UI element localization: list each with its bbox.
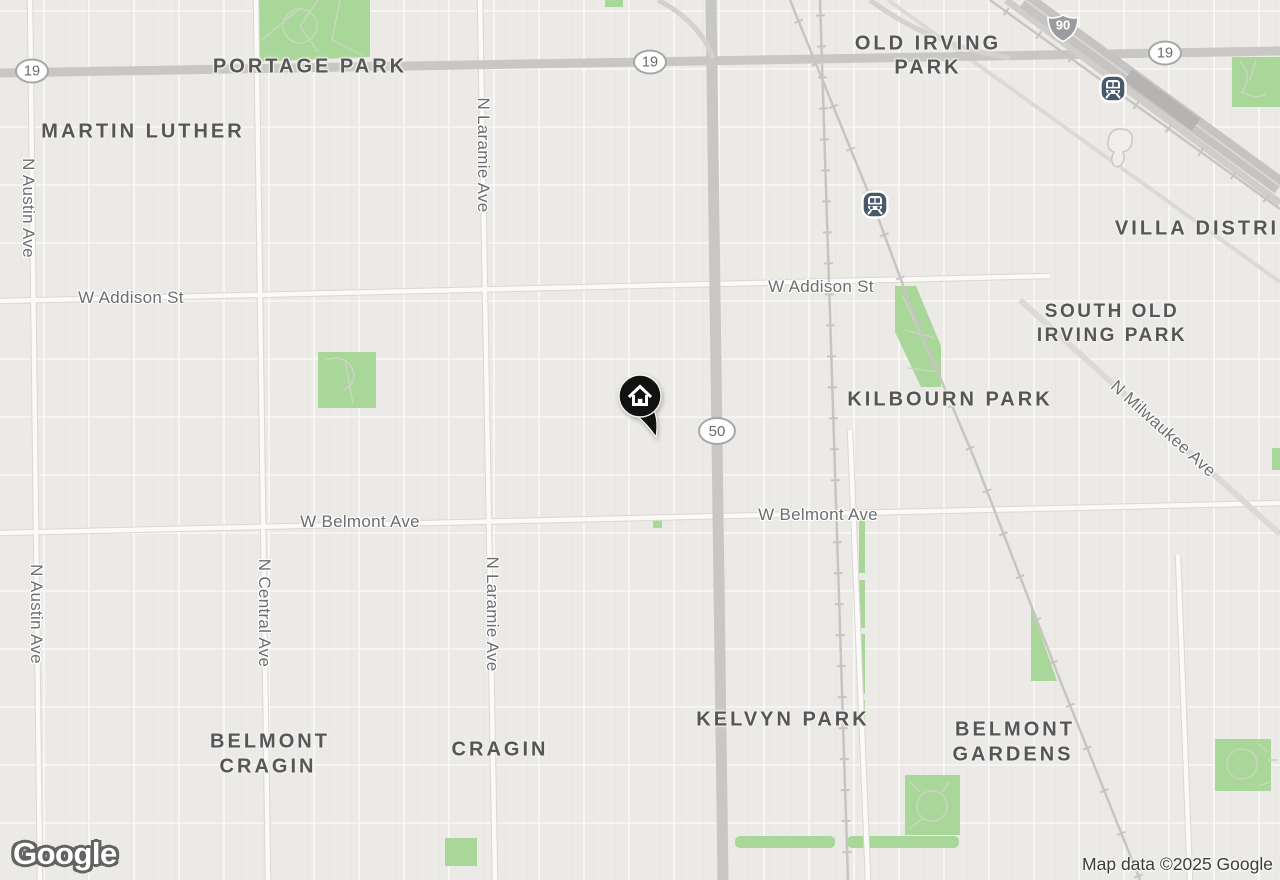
pond bbox=[1108, 129, 1132, 167]
interstate-shield-number: 90 bbox=[1046, 18, 1080, 33]
google-logo[interactable]: Google bbox=[13, 836, 117, 872]
home-marker-pin[interactable] bbox=[608, 362, 674, 444]
train-station-icon[interactable] bbox=[1099, 74, 1127, 104]
milwaukee-ave-road bbox=[1020, 300, 1280, 534]
route-shield-50: 50 bbox=[698, 417, 736, 445]
route-shield-19-west: 19 bbox=[15, 59, 49, 84]
map-canvas[interactable]: PORTAGE PARK MARTIN LUTHER OLD IRVING PA… bbox=[0, 0, 1280, 880]
route-shield-19-center: 19 bbox=[633, 50, 667, 75]
map-attribution: Map data ©2025 Google bbox=[1082, 854, 1273, 875]
route-shield-19-east: 19 bbox=[1148, 41, 1182, 66]
train-station-icon[interactable] bbox=[861, 190, 889, 220]
park-paths bbox=[262, 0, 1278, 828]
interstate-shield-90: 90 bbox=[1046, 14, 1080, 43]
